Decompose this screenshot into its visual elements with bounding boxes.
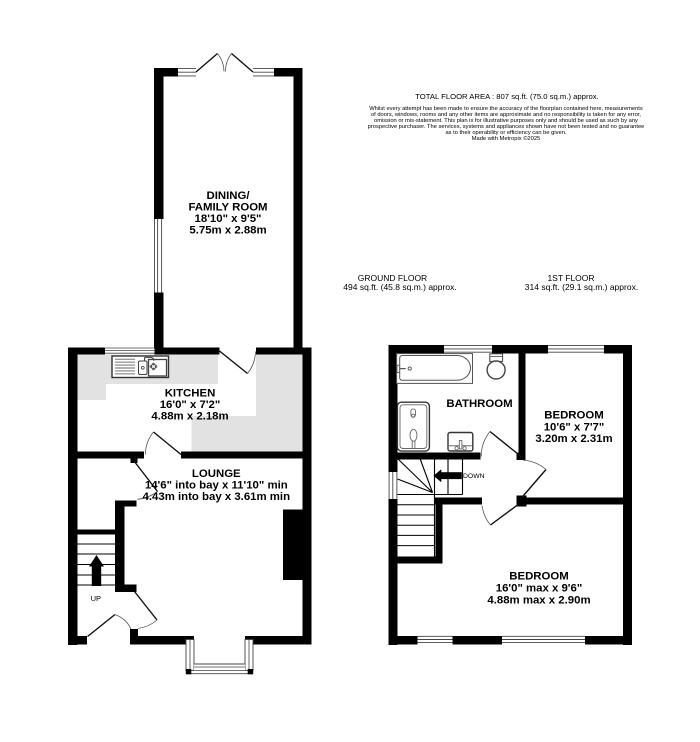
svg-text:TOTAL FLOOR AREA : 807 sq.ft.: TOTAL FLOOR AREA : 807 sq.ft. (75.0 sq.m… — [415, 92, 599, 101]
svg-text:DINING/: DINING/ — [206, 190, 250, 202]
svg-text:4.43m into bay x 3.61m min: 4.43m into bay x 3.61m min — [143, 491, 291, 503]
svg-text:18'10" x 9'5": 18'10" x 9'5" — [195, 213, 262, 225]
svg-text:10'6" x 7'7": 10'6" x 7'7" — [544, 422, 605, 434]
svg-text:494 sq.ft. (45.8 sq.m.) approx: 494 sq.ft. (45.8 sq.m.) approx. — [343, 282, 456, 292]
svg-text:5.75m x 2.88m: 5.75m x 2.88m — [189, 225, 266, 237]
svg-text:UP: UP — [91, 594, 101, 603]
svg-text:LOUNGE: LOUNGE — [192, 468, 241, 480]
svg-text:4.88m x 2.18m: 4.88m x 2.18m — [151, 411, 228, 423]
svg-text:BATHROOM: BATHROOM — [446, 398, 512, 410]
svg-text:4.88m max x 2.90m: 4.88m max x 2.90m — [487, 595, 590, 607]
svg-text:DOWN: DOWN — [463, 473, 485, 480]
svg-text:16'0" max x 9'6": 16'0" max x 9'6" — [496, 583, 583, 595]
svg-text:BEDROOM: BEDROOM — [544, 410, 603, 422]
svg-text:3.20m x 2.31m: 3.20m x 2.31m — [535, 433, 612, 445]
svg-text:FAMILY ROOM: FAMILY ROOM — [188, 202, 267, 214]
svg-text:14'6" into bay x 11'10" min: 14'6" into bay x 11'10" min — [145, 480, 288, 492]
svg-text:BEDROOM: BEDROOM — [509, 571, 568, 583]
svg-text:KITCHEN: KITCHEN — [165, 388, 216, 400]
svg-text:Made with Metropix ©2025: Made with Metropix ©2025 — [472, 135, 540, 142]
svg-text:314 sq.ft. (29.1 sq.m.) approx: 314 sq.ft. (29.1 sq.m.) approx. — [525, 282, 638, 292]
svg-text:16'0" x 7'2": 16'0" x 7'2" — [160, 399, 221, 411]
